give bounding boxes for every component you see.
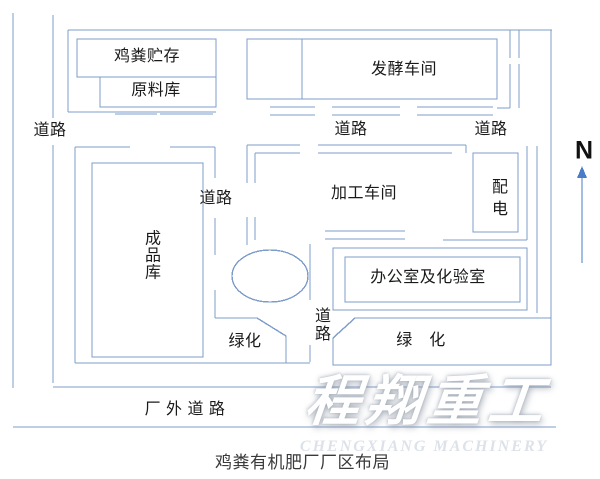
road-label-outer-west: 道路 [33,122,66,140]
road-label-inner-east: 道路 [474,121,507,139]
storage-block-outline [68,30,216,114]
finished-goods-block-outline [75,147,310,363]
road-label-inner-mid: 道路 [334,121,367,139]
road-label-inner-west: 道路 [199,190,232,208]
outer-road-west-lines [13,13,53,388]
compass-north-label: N [575,137,593,166]
diagram-caption: 鸡粪有机肥厂厂区布局 [215,448,390,473]
processing-label: 加工车间 [331,185,397,203]
compass-arrow-icon [577,166,587,263]
road-dashes-below-fermentation [270,107,510,115]
factory-layout-diagram: 道路 鸡粪贮存 原料库 发酵车间 道路 道路 加工车间 配电 道路 成品库 办公… [0,0,600,479]
power-distribution-label: 配电 [488,178,506,222]
pond-ellipse [232,250,308,302]
watermark-brand: 程翔重工 [302,356,554,436]
green-left-label: 绿化 [228,333,261,351]
finished-goods-label: 成品库 [141,230,159,281]
road-label-outer-south: 厂 外 道 路 [145,401,226,419]
road-east-lines [510,30,537,313]
road-label-inner-south: 道路 [311,307,329,343]
manure-storage-label: 鸡粪贮存 [114,48,180,66]
office-lab-label: 办公室及化验室 [370,269,486,287]
green-right-label: 绿 化 [396,332,446,350]
fermentation-label: 发酵车间 [371,61,437,79]
raw-material-label: 原料库 [131,82,181,100]
